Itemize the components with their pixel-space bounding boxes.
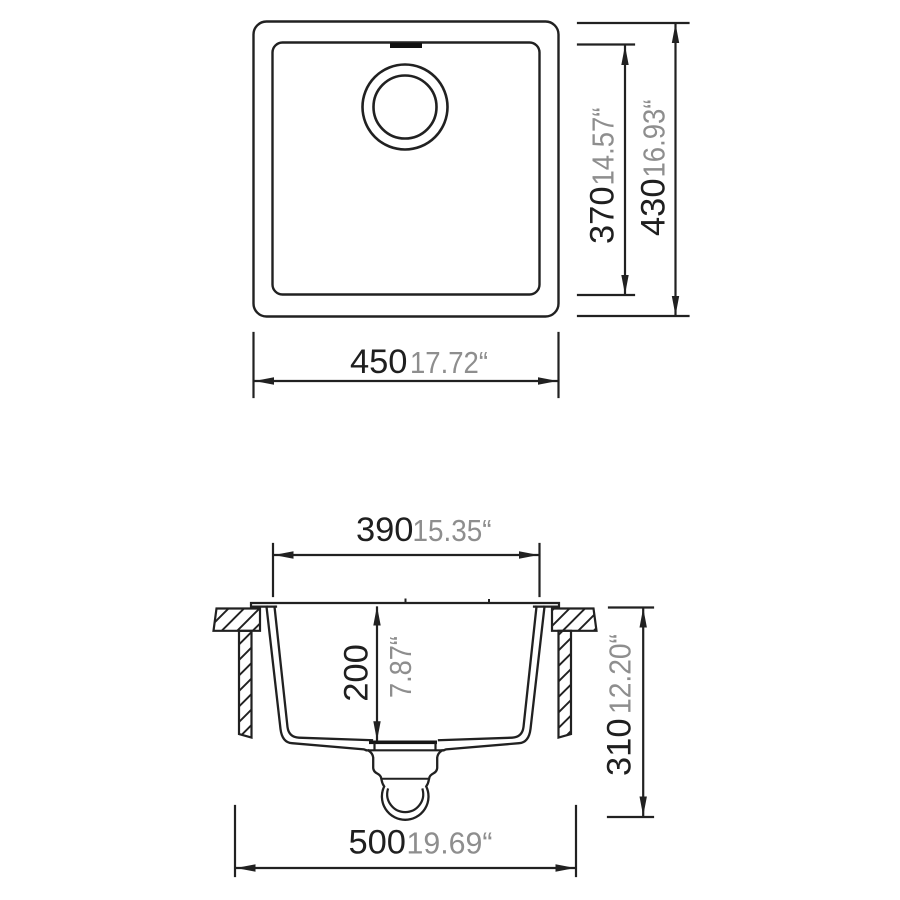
- svg-text:430: 430: [635, 178, 673, 236]
- svg-text:310: 310: [601, 718, 639, 776]
- svg-text:450: 450: [350, 343, 408, 381]
- svg-text:14.57“: 14.57“: [587, 108, 621, 186]
- svg-text:19.69“: 19.69“: [407, 827, 493, 861]
- svg-text:16.93“: 16.93“: [638, 100, 672, 178]
- svg-text:200: 200: [338, 644, 376, 702]
- svg-text:370: 370: [584, 186, 622, 244]
- svg-text:12.20“: 12.20“: [604, 634, 638, 714]
- svg-text:390: 390: [356, 511, 414, 549]
- svg-text:7.87“: 7.87“: [384, 636, 418, 698]
- svg-text:500: 500: [348, 824, 406, 862]
- svg-text:17.72“: 17.72“: [410, 346, 488, 380]
- svg-text:15.35“: 15.35“: [413, 514, 492, 548]
